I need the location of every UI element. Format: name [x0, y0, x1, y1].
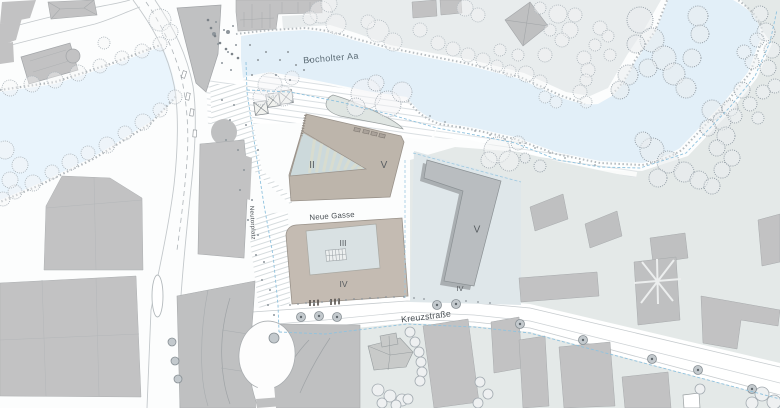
svg-text:III: III	[339, 238, 346, 248]
svg-text:II: II	[309, 160, 315, 171]
svg-text:IV: IV	[456, 284, 463, 293]
svg-text:IV: IV	[339, 279, 347, 289]
svg-text:V: V	[381, 160, 388, 171]
svg-text:V: V	[474, 225, 481, 236]
